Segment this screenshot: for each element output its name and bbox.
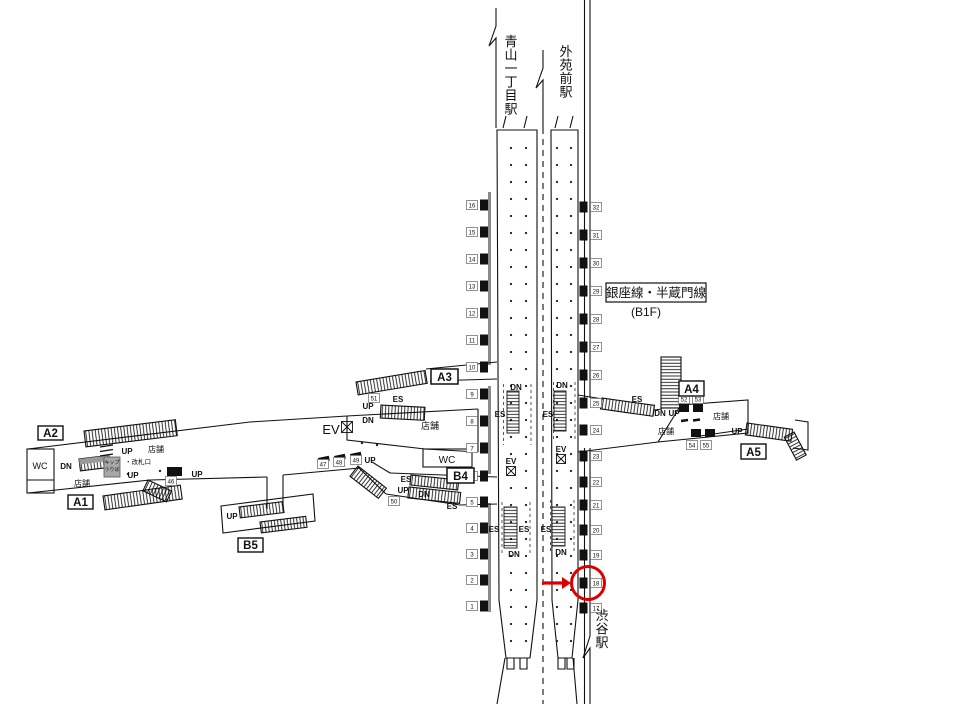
- up-label: UP: [397, 486, 409, 495]
- a2-stairs: [84, 420, 177, 447]
- platform-dot: [556, 436, 558, 438]
- ad-position-number: 53: [695, 397, 702, 403]
- ad-board-mark: [580, 314, 588, 325]
- ad-position-number: 23: [593, 454, 600, 460]
- ad-position-number: 10: [469, 365, 476, 371]
- ad-board-mark: [580, 202, 588, 213]
- ad-position-number: 25: [593, 401, 600, 407]
- ad-position-number: 50: [391, 499, 398, 505]
- platform-dot: [525, 402, 527, 404]
- ad-board-mark: [580, 425, 588, 436]
- ad-board-mark: [480, 471, 488, 482]
- platform-dot: [510, 317, 512, 319]
- ad-board-mark: [580, 286, 588, 297]
- platform-dot: [525, 249, 527, 251]
- up-label: UP: [364, 456, 376, 465]
- platform-dot: [570, 521, 572, 523]
- ad-position-number: 52: [681, 397, 688, 403]
- left-concourse: [27, 362, 497, 533]
- a3-stairs: [356, 370, 427, 394]
- ad-board-mark: [480, 416, 488, 427]
- dn-label: DN: [418, 490, 430, 499]
- a3-stairs-lower: [380, 405, 425, 420]
- platform-dot: [570, 198, 572, 200]
- es-label: ES: [489, 525, 500, 534]
- platform-dot: [556, 198, 558, 200]
- concourse-dot: [159, 470, 161, 472]
- ad-board-mark: [580, 230, 588, 241]
- platform-dot: [510, 266, 512, 268]
- elevator-icon: [557, 455, 566, 464]
- station-diagram-canvas: 16151413121110987654321 3231302928272625…: [0, 0, 960, 720]
- platform-dot: [570, 317, 572, 319]
- platform-dot: [556, 487, 558, 489]
- ad-board-mark: [480, 389, 488, 400]
- station-label-shibuya: 渋谷駅: [595, 608, 608, 650]
- platform-dot: [510, 606, 512, 608]
- highlight-arrow-head: [562, 577, 571, 589]
- platform-dot: [556, 334, 558, 336]
- platform-dot: [556, 351, 558, 353]
- platform-dot: [556, 164, 558, 166]
- platform-dot: [525, 300, 527, 302]
- ad-position-number: 32: [593, 205, 600, 211]
- ad-positions-right-wall: 32313029282726252423222120191817: [580, 202, 602, 614]
- ad-position-number: 22: [593, 480, 600, 486]
- platform-dot: [525, 368, 527, 370]
- line-name: 銀座線・半蔵門線: [606, 285, 707, 300]
- ad-position-number: 55: [703, 443, 710, 449]
- svg-text:A1: A1: [73, 497, 88, 509]
- platform-dot: [570, 266, 572, 268]
- platform-dot: [510, 198, 512, 200]
- platform-dot: [556, 232, 558, 234]
- ad-position-number: 29: [593, 289, 600, 295]
- es-label: ES: [543, 410, 554, 419]
- ticket-office-label: うりば: [104, 466, 119, 473]
- svg-text:B5: B5: [243, 540, 258, 552]
- concourse-dot: [376, 444, 378, 446]
- platform-dot: [570, 453, 572, 455]
- exit-label-b4: B4: [447, 468, 474, 483]
- track-break-left: [489, 8, 496, 128]
- ad-position-number: 30: [593, 261, 600, 267]
- shop-label: 店舗: [148, 444, 164, 454]
- ad-position-number: 27: [593, 345, 600, 351]
- shop-label: 店舗: [74, 478, 90, 488]
- platform-dot: [510, 436, 512, 438]
- ev-label: EV: [322, 422, 340, 437]
- platform-dot: [510, 589, 512, 591]
- platform-dot: [510, 334, 512, 336]
- elevator-icon: [507, 467, 516, 476]
- up-label: UP: [226, 512, 238, 521]
- ad-board-mark: [480, 575, 488, 586]
- dn-label: DN: [362, 416, 374, 425]
- ad-position-number: 24: [593, 428, 600, 434]
- ad-position-number: 46: [168, 479, 175, 485]
- platform-dot: [556, 640, 558, 642]
- platform-dot: [510, 487, 512, 489]
- platform-dot: [556, 147, 558, 149]
- platform-dot: [556, 623, 558, 625]
- ad-board-mark: [480, 254, 488, 265]
- ad-position-number: 21: [593, 503, 600, 509]
- svg-text:A3: A3: [437, 372, 452, 384]
- ad-positions-left-wall: 16151413121110987654321: [467, 200, 489, 612]
- platform-dot: [570, 402, 572, 404]
- platform-dot: [525, 385, 527, 387]
- platform-dot: [570, 368, 572, 370]
- ad-board-mark: [580, 525, 588, 536]
- platform-dot: [510, 164, 512, 166]
- dn-label: DN: [60, 462, 72, 471]
- platform-dot: [570, 164, 572, 166]
- platform-dot: [570, 623, 572, 625]
- platform-dot: [525, 164, 527, 166]
- ad-position-number: 18: [593, 581, 600, 587]
- shop-label: 店舗: [713, 411, 729, 421]
- ad-board-mark: [480, 227, 488, 238]
- platform-dot: [525, 453, 527, 455]
- ad-position-number: 11: [469, 338, 476, 344]
- platform-dot: [556, 317, 558, 319]
- platform-dot: [570, 555, 572, 557]
- platform-dot: [556, 215, 558, 217]
- platform-dot: [525, 606, 527, 608]
- platform-dot: [525, 470, 527, 472]
- ev-label: EV: [556, 445, 567, 454]
- dn-label: DN: [654, 409, 666, 418]
- a1-stairs: [103, 485, 182, 510]
- platform-dot: [525, 640, 527, 642]
- es-label: ES: [401, 475, 412, 484]
- dash-marks: [681, 420, 700, 422]
- svg-text:A2: A2: [43, 428, 58, 440]
- ad-board-mark: [480, 497, 488, 508]
- ad-position-number: 31: [593, 233, 600, 239]
- shop-label: 店舗: [658, 426, 674, 436]
- platform-dot: [570, 436, 572, 438]
- svg-text:B4: B4: [453, 471, 468, 483]
- platform-dot: [570, 487, 572, 489]
- shop-label: 店舗: [421, 420, 439, 431]
- platform-dot: [556, 504, 558, 506]
- platform-dot: [556, 368, 558, 370]
- platform-dot: [510, 453, 512, 455]
- platform-dot: [525, 334, 527, 336]
- platform-dot: [510, 181, 512, 183]
- up-label: UP: [191, 470, 203, 479]
- ad-position-number: 49: [353, 458, 360, 464]
- dn-label: DN: [556, 381, 568, 390]
- floor-label: (B1F): [631, 305, 661, 319]
- ad-position-number: 12: [469, 311, 476, 317]
- exit-label-a5: A5: [741, 444, 766, 459]
- platform-dot: [510, 504, 512, 506]
- es-label: ES: [447, 502, 458, 511]
- platform-dot: [525, 538, 527, 540]
- wc-room: [27, 449, 54, 493]
- wc-label: WC: [33, 461, 48, 471]
- svg-text:A5: A5: [746, 447, 761, 459]
- platform-dot: [525, 623, 527, 625]
- platform-dot: [510, 351, 512, 353]
- ad-board-mark: [480, 523, 488, 534]
- platform-dot: [525, 487, 527, 489]
- platform-dot: [510, 232, 512, 234]
- exit-label-a2: A2: [38, 426, 63, 440]
- platform-dot: [570, 504, 572, 506]
- platform-dot: [570, 385, 572, 387]
- ad-board-mark: [480, 601, 488, 612]
- station-label-gaienmae: 外苑前駅: [559, 44, 572, 100]
- platform-dot: [525, 317, 527, 319]
- platform-dot: [525, 589, 527, 591]
- platform-dot: [510, 215, 512, 217]
- ad-position-number: 14: [469, 257, 476, 263]
- platform-dot: [525, 283, 527, 285]
- platform-dot: [510, 147, 512, 149]
- ad-board-mark: [580, 500, 588, 511]
- wc-label: WC: [439, 455, 456, 466]
- platform-dot: [510, 368, 512, 370]
- ad-board-mark: [480, 200, 488, 211]
- platform-dot: [556, 266, 558, 268]
- platform-dot: [525, 181, 527, 183]
- ad-position-number: 28: [593, 317, 600, 323]
- ad-position-number: 48: [336, 460, 343, 466]
- ad-board-mark: [580, 477, 588, 488]
- up-label: UP: [731, 427, 743, 436]
- platform-dot: [570, 147, 572, 149]
- ad-position-number: 20: [593, 528, 600, 534]
- exit-label-a3: A3: [431, 369, 458, 384]
- ad-board-mark: [580, 578, 588, 589]
- platform-dot: [556, 300, 558, 302]
- platform-dot: [525, 521, 527, 523]
- ad-board-mark: [580, 451, 588, 462]
- platform-dot: [510, 283, 512, 285]
- platform-dot: [510, 623, 512, 625]
- up-label: UP: [362, 402, 374, 411]
- ad-position-number: 15: [469, 230, 476, 236]
- ad-board-mark: [480, 335, 488, 346]
- passage-bottom-edge: [578, 442, 658, 452]
- platform-dot: [570, 334, 572, 336]
- track-left-bottom: [497, 658, 505, 704]
- ad-board-mark: [580, 398, 588, 409]
- labels: 青山一丁目駅 外苑前駅 渋谷駅 銀座線・半蔵門線 (B1F) A2 A1 A3 …: [33, 34, 767, 650]
- platform-dot: [525, 555, 527, 557]
- ad-board-mark: [580, 258, 588, 269]
- ad-position-number: 26: [593, 373, 600, 379]
- b5-stairs-2: [260, 516, 307, 533]
- platform-dot: [570, 249, 572, 251]
- ad-board-mark: [480, 281, 488, 292]
- platform-dot: [525, 266, 527, 268]
- platform-dot: [556, 606, 558, 608]
- platform-dot: [570, 215, 572, 217]
- platform-dot: [510, 249, 512, 251]
- ad-board-mark: [580, 342, 588, 353]
- es-label: ES: [541, 525, 552, 534]
- platform-dot: [570, 538, 572, 540]
- platform-dot: [525, 351, 527, 353]
- es-label: ES: [393, 395, 404, 404]
- exit-label-a4: A4: [679, 381, 704, 396]
- es-escalator: [600, 398, 654, 416]
- platform-dot: [570, 283, 572, 285]
- platform-dot: [556, 470, 558, 472]
- svg-text:A4: A4: [684, 384, 699, 396]
- b4-diagonal-stairs: [350, 466, 386, 498]
- es-label: ES: [632, 395, 643, 404]
- dn-label: DN: [510, 383, 522, 392]
- ad-board-mark: [480, 308, 488, 319]
- es-label: ES: [519, 525, 530, 534]
- exit-label-b5: B5: [238, 538, 263, 552]
- ad-position-number: 13: [469, 284, 476, 290]
- platform-dot: [525, 147, 527, 149]
- platform-dot: [525, 419, 527, 421]
- platform-dot: [525, 504, 527, 506]
- dn-label: DN: [555, 548, 567, 557]
- platform-dot: [570, 300, 572, 302]
- up-label: UP: [127, 471, 139, 480]
- b5-stairs: [239, 502, 284, 518]
- ad-position-number: 19: [593, 553, 600, 559]
- platform-dot: [556, 181, 558, 183]
- a4-stairs: [661, 357, 681, 408]
- platform-end-ticks-top: [503, 116, 527, 128]
- platform-dot: [556, 589, 558, 591]
- ev-label: EV: [506, 457, 517, 466]
- platform-dot: [556, 249, 558, 251]
- up-label: UP: [668, 409, 680, 418]
- platform-dot: [525, 572, 527, 574]
- platform-dot: [570, 232, 572, 234]
- a5-stairs-turn: [784, 432, 806, 460]
- platform-dot: [556, 283, 558, 285]
- platform-dot: [525, 198, 527, 200]
- ad-board-mark: [580, 370, 588, 381]
- platform-dot: [525, 436, 527, 438]
- platform-dot: [556, 572, 558, 574]
- ticket-office-label: キップ: [104, 460, 119, 466]
- es-label: ES: [495, 410, 506, 419]
- gate-marks: [100, 445, 113, 456]
- concourse-dot: [361, 442, 363, 444]
- station-map: 16151413121110987654321 3231302928272625…: [0, 0, 960, 720]
- platform-dot: [570, 351, 572, 353]
- platform-dot: [525, 215, 527, 217]
- ad-board-mark: [580, 550, 588, 561]
- track-break-center: [536, 50, 543, 128]
- ad-position-number: 47: [320, 462, 327, 468]
- platform-dot: [570, 606, 572, 608]
- platform-dot: [570, 419, 572, 421]
- platform-dot: [525, 232, 527, 234]
- platform-feet-bottom: [507, 658, 527, 669]
- ad-board-mark: [480, 549, 488, 560]
- platform-dot: [570, 640, 572, 642]
- dn-label: DN: [508, 550, 520, 559]
- platform-dot: [510, 572, 512, 574]
- platform-dot: [570, 181, 572, 183]
- platform-dot: [570, 572, 572, 574]
- ticket-gate-label: ・改札口: [125, 457, 151, 466]
- ad-board-mark: [580, 603, 588, 614]
- ad-position-number: 54: [689, 443, 696, 449]
- ad-board-mark: [480, 362, 488, 373]
- platform-feet-bottom: [558, 658, 574, 669]
- platform-dot: [510, 300, 512, 302]
- platform-dot: [570, 470, 572, 472]
- ad-board-mark: [480, 443, 488, 454]
- up-label: UP: [121, 447, 133, 456]
- station-label-aoyama-itchome: 青山一丁目駅: [504, 34, 517, 117]
- exit-label-a1: A1: [68, 495, 93, 509]
- platform-end-ticks-top: [555, 116, 573, 128]
- platform-dot: [510, 640, 512, 642]
- ad-position-number: 16: [469, 203, 476, 209]
